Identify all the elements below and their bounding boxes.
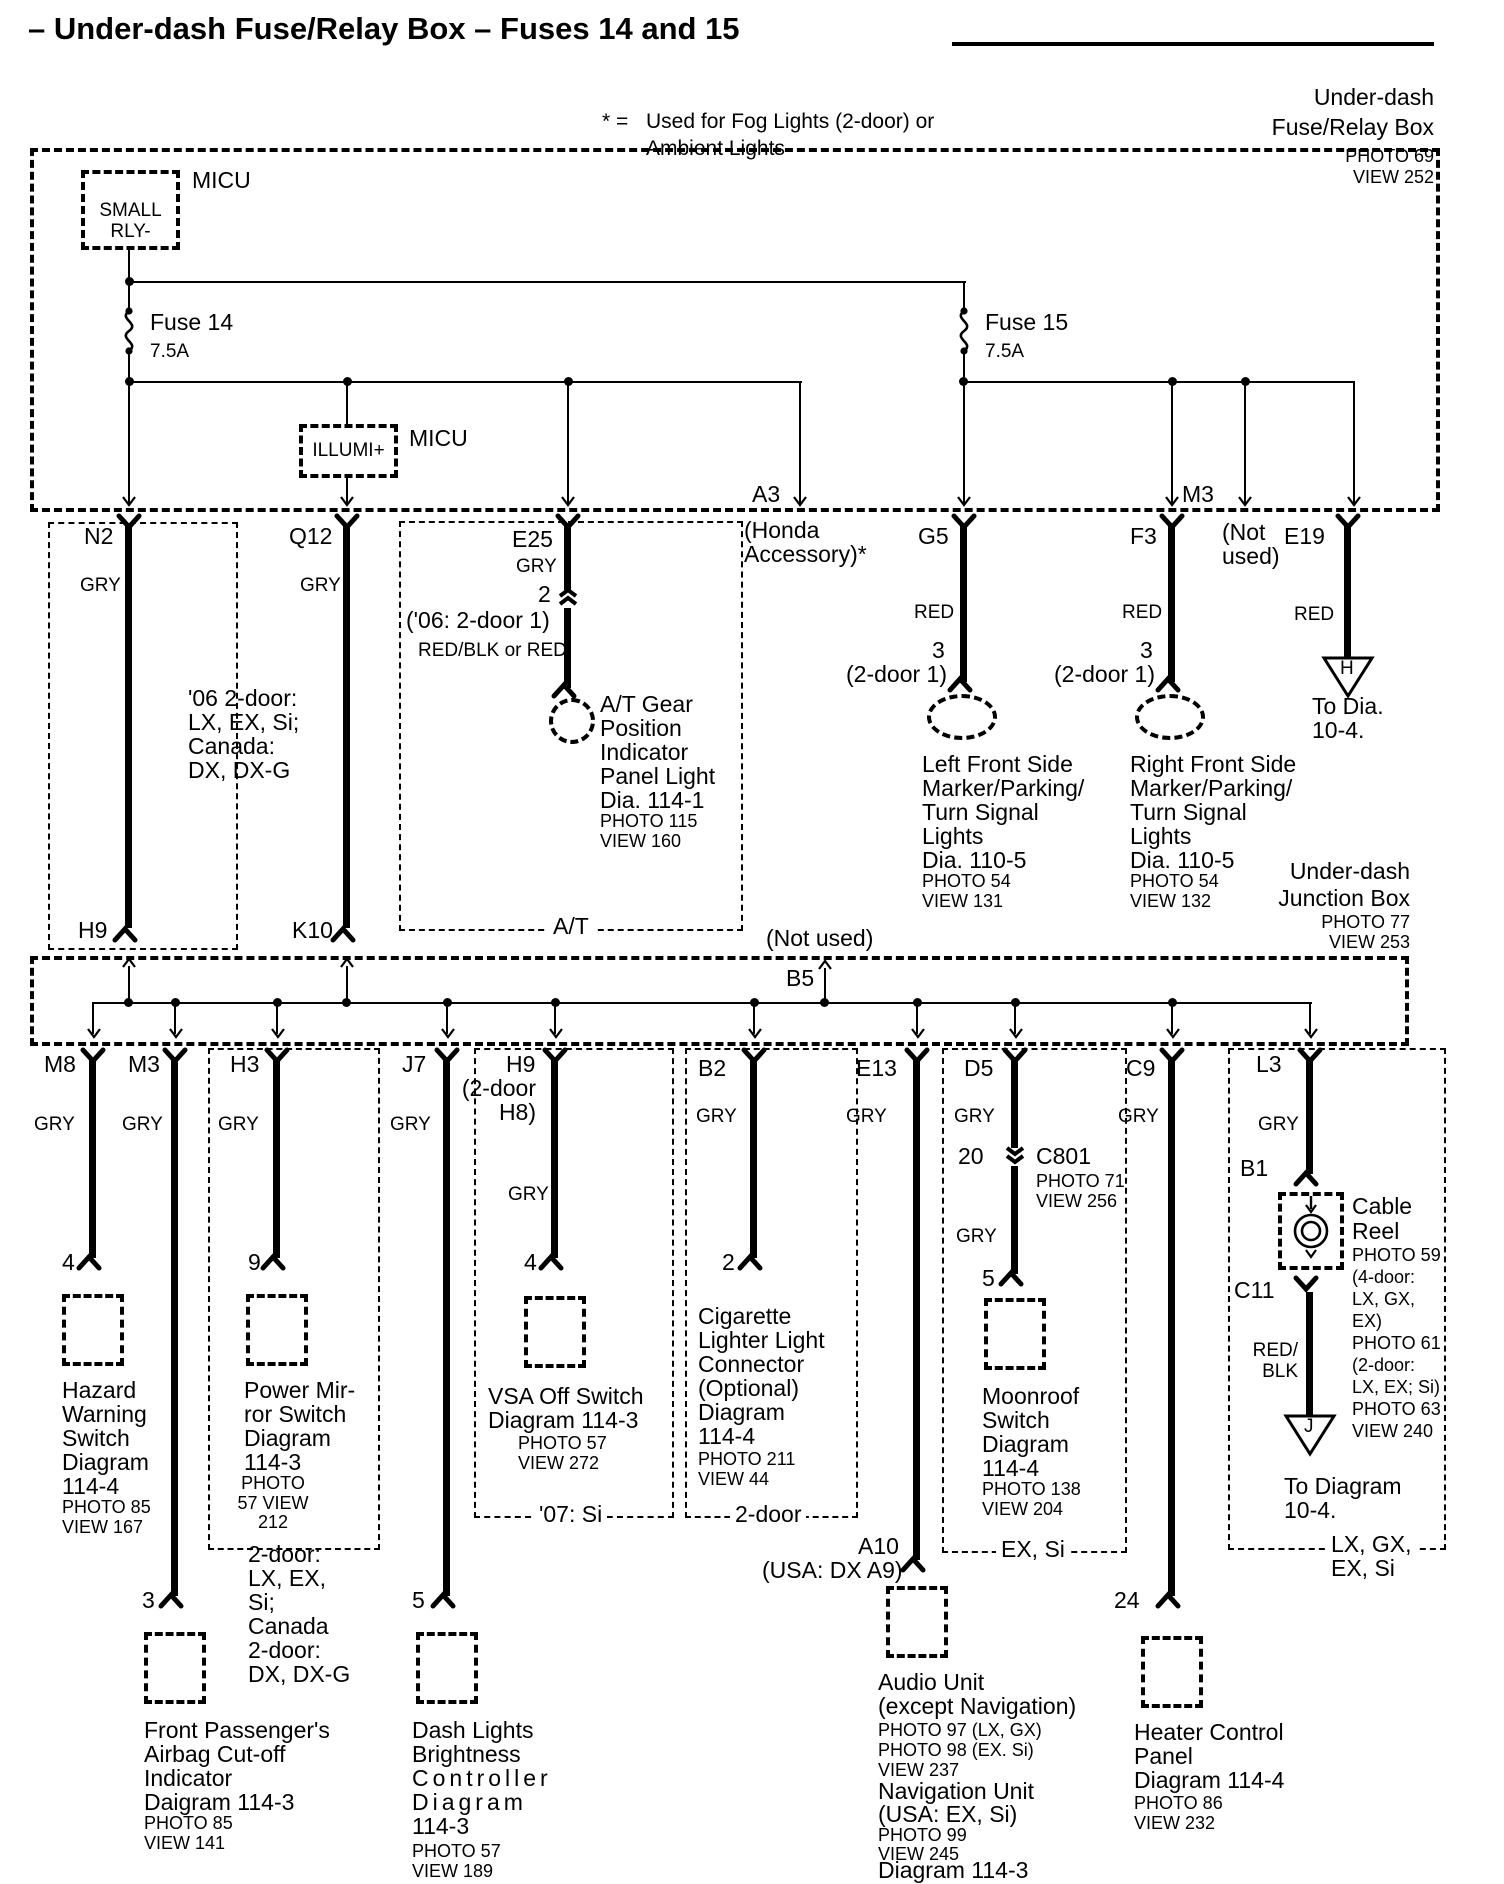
connector-fork-down xyxy=(76,1254,102,1270)
connector-fork-down xyxy=(158,1592,184,1608)
arrow-down-e19 xyxy=(1346,496,1362,506)
h9-sub-note: (2-door H8) xyxy=(440,1076,536,1124)
fusebox-caption: Under-dash Fuse/Relay Box xyxy=(1150,82,1434,142)
e25-dest-ref: PHOTO 115 VIEW 160 xyxy=(600,812,697,851)
h3-note: 2-door: LX, EX, Si; Canada 2-door: DX, D… xyxy=(248,1542,350,1686)
junction-dot xyxy=(820,998,829,1007)
h9-pin: 4 xyxy=(524,1250,537,1274)
arrow-down xyxy=(1008,1028,1024,1038)
j7-pin: 5 xyxy=(412,1588,425,1612)
m8-pin: 4 xyxy=(62,1250,75,1274)
wire-illumi xyxy=(346,382,348,424)
wire-d5-upper xyxy=(1011,1058,1018,1148)
c9-dest: Heater Control Panel Diagram 114-4 xyxy=(1134,1720,1284,1792)
fuse-relay-box-outline xyxy=(30,148,1440,512)
m8-dest-ref: PHOTO 85 VIEW 167 xyxy=(62,1498,151,1537)
l3-wire-color2: RED/ BLK xyxy=(1240,1340,1298,1382)
e25-wire-color: GRY xyxy=(516,556,557,577)
e13-dest: Audio Unit (except Navigation) xyxy=(878,1670,1076,1718)
fuse14-rating: 7.5A xyxy=(150,341,189,362)
cable-reel-spiral xyxy=(1280,1194,1342,1264)
m3-dest-ref: PHOTO 85 VIEW 141 xyxy=(144,1814,233,1853)
connector-h9-label: H9 xyxy=(506,1052,535,1076)
connector-fork-down xyxy=(947,676,973,692)
wire-e19 xyxy=(1344,524,1351,658)
arrow-up-h9 xyxy=(121,958,137,968)
connector-m8-label: M8 xyxy=(44,1052,76,1076)
j7-dest-spaced: Controller Diagram xyxy=(412,1766,552,1814)
fuse15-symbol xyxy=(956,306,972,356)
connector-f3-label: F3 xyxy=(1130,524,1157,548)
arrow-down xyxy=(440,1028,456,1038)
c9-pin: 24 xyxy=(1114,1588,1140,1612)
audio-unit-box xyxy=(886,1586,948,1658)
f3-wire-color: RED xyxy=(1122,602,1162,623)
micu-relay-label: MICU xyxy=(192,168,251,192)
at-box-label: A/T xyxy=(548,914,594,938)
n2-wire-color: GRY xyxy=(80,575,121,596)
wire-b2 xyxy=(750,1058,757,1258)
n2-exit-label: H9 xyxy=(78,918,107,942)
connector-j7-label: J7 xyxy=(402,1052,426,1076)
connector-m3-row1-label: M3 xyxy=(1182,482,1214,506)
junction-dot xyxy=(125,277,134,286)
b2-pin: 2 xyxy=(722,1250,735,1274)
f3-pin: 3 xyxy=(1140,638,1153,662)
fuse15-rating: 7.5A xyxy=(985,341,1024,362)
arrow-down xyxy=(910,1028,926,1038)
mid-right-bus xyxy=(963,381,1355,383)
wire-m3-drop xyxy=(1244,382,1246,504)
e19-wire-color: RED xyxy=(1294,604,1334,625)
junctionbox-caption-ref: PHOTO 77 VIEW 253 xyxy=(1150,912,1410,952)
connector-c9-label: C9 xyxy=(1126,1056,1155,1080)
arrow-down-f3 xyxy=(1164,496,1180,506)
power-mirror-switch-box xyxy=(246,1294,308,1366)
connector-fork-down xyxy=(1155,1592,1181,1608)
connector-n2-label: N2 xyxy=(84,524,113,548)
b1-label: B1 xyxy=(1240,1156,1268,1180)
e25-wire-color2: RED/BLK or RED xyxy=(418,640,567,661)
connector-a3-label: A3 xyxy=(752,482,780,506)
arrow-down-q12 xyxy=(339,496,355,506)
d5-pin: 5 xyxy=(982,1266,995,1290)
h3-pin: 9 xyxy=(248,1250,261,1274)
g5-connector-oval xyxy=(927,694,997,740)
connector-fork-down xyxy=(1155,676,1181,692)
wire-g5 xyxy=(960,524,967,682)
connector-fork-down xyxy=(998,1270,1024,1286)
e13-dest-ref: PHOTO 97 (LX, GX) PHOTO 98 (EX. Si) VIEW… xyxy=(878,1720,1042,1780)
connector-h3-label: H3 xyxy=(230,1052,259,1076)
junction-dot xyxy=(959,377,968,386)
d5-wire-color2: GRY xyxy=(956,1226,997,1247)
top-bus xyxy=(128,281,966,283)
arrow-up-k10 xyxy=(339,958,355,968)
connector-g5-label: G5 xyxy=(918,524,949,548)
wire-l3-lower xyxy=(1306,1292,1313,1416)
b2-dest: Cigarette Lighter Light Connector (Optio… xyxy=(698,1304,825,1448)
connector-fork xyxy=(1293,1276,1319,1292)
moonroof-switch-box xyxy=(984,1298,1046,1370)
arrow-down xyxy=(1165,1028,1181,1038)
e13-dest2: Navigation Unit (USA: EX, Si) xyxy=(878,1780,1034,1826)
g5-dest: Left Front Side Marker/Parking/ Turn Sig… xyxy=(922,752,1084,872)
junctionbox-caption: Under-dash Junction Box xyxy=(1150,858,1410,912)
airbag-indicator-box xyxy=(144,1632,206,1704)
micu-illumi-label: MICU xyxy=(409,426,468,450)
g5-pin: 3 xyxy=(932,638,945,662)
row1-variant-note: '06 2-door: LX, EX, Si; Canada: DX, DX-G xyxy=(188,686,299,782)
page-title: – Under-dash Fuse/Relay Box – Fuses 14 a… xyxy=(28,12,740,46)
c9-dest-ref: PHOTO 86 VIEW 232 xyxy=(1134,1794,1223,1833)
wire-m8 xyxy=(89,1058,96,1258)
arrow-down xyxy=(548,1028,564,1038)
e25-pin: 2 xyxy=(538,582,551,606)
f3-connector-oval xyxy=(1135,694,1205,740)
connector-fork-down xyxy=(112,926,138,942)
wire-e25-upper xyxy=(564,524,571,590)
hazard-switch-box xyxy=(62,1294,124,1366)
d5-wire-color: GRY xyxy=(954,1106,995,1127)
d5-dest-ref: PHOTO 138 VIEW 204 xyxy=(982,1480,1081,1519)
q12-wire-color: GRY xyxy=(300,575,341,596)
connector-l3-label: L3 xyxy=(1256,1052,1282,1076)
e19-dest: To Dia. 10-4. xyxy=(1312,694,1384,742)
arrow-down-m3 xyxy=(1237,496,1253,506)
b2-box-label: 2-door xyxy=(730,1502,806,1526)
h9-box-label: '07: Si xyxy=(534,1502,607,1526)
cable-reel-ref: PHOTO 59 (4-door: LX, GX, EX) PHOTO 61 (… xyxy=(1352,1244,1441,1442)
b2-dest-ref: PHOTO 211 VIEW 44 xyxy=(698,1450,795,1489)
arrow-down xyxy=(270,1028,286,1038)
m3-dest: Front Passenger's Airbag Cut-off Indicat… xyxy=(144,1718,330,1814)
connector-d5-label: D5 xyxy=(964,1056,993,1080)
f3-pin-note: (2-door 1) xyxy=(1054,662,1155,686)
illumi-label: ILLUMI+ xyxy=(299,440,398,461)
connector-fork-down xyxy=(1293,1170,1319,1186)
g5-dest-ref: PHOTO 54 VIEW 131 xyxy=(922,872,1011,911)
connector-fork-down xyxy=(551,682,577,698)
wiring-diagram-page: { "title": "– Under-dash Fuse/Relay Box … xyxy=(0,0,1504,1884)
bulb-symbol xyxy=(549,698,595,744)
wire-e13 xyxy=(913,1058,920,1560)
junction-box-outline xyxy=(30,956,1409,1046)
j7-dest-ref: PHOTO 57 VIEW 189 xyxy=(412,1842,501,1881)
a10-note: (USA: DX A9) xyxy=(762,1558,903,1582)
d5-dest: Moonroof Switch Diagram 114-4 xyxy=(982,1384,1079,1480)
arrow-down xyxy=(168,1028,184,1038)
b5-label: B5 xyxy=(786,966,814,990)
h9-dest-ref: PHOTO 57 VIEW 272 xyxy=(518,1434,607,1473)
wire-m3 xyxy=(171,1058,178,1596)
wire-h3 xyxy=(273,1058,280,1258)
connector-fork-down xyxy=(430,1592,456,1608)
wire-d5-lower xyxy=(1011,1166,1018,1274)
connector-fork-down xyxy=(330,926,356,942)
arrow-down-a3 xyxy=(792,496,808,506)
h3-wire-color: GRY xyxy=(218,1114,259,1135)
g5-pin-note: (2-door 1) xyxy=(846,662,947,686)
h3-dest: Power Mir- ror Switch Diagram 114-3 xyxy=(244,1378,355,1474)
arrow-down xyxy=(1303,1028,1319,1038)
junction-dot xyxy=(125,377,134,386)
wire-f3-drop xyxy=(1171,382,1173,504)
l3-dest: To Diagram 10-4. xyxy=(1284,1474,1402,1522)
fuse14-label: Fuse 14 xyxy=(150,310,233,334)
connector-m3-row2-label: M3 xyxy=(128,1052,160,1076)
e25-note: ('06: 2-door 1) xyxy=(406,608,550,632)
wire-j7 xyxy=(443,1058,450,1596)
b2-wire-color: GRY xyxy=(696,1106,737,1127)
a10-label: A10 xyxy=(858,1534,899,1558)
connector-b2-label: B2 xyxy=(698,1056,726,1080)
m3-row1-note: (Not used) xyxy=(1222,520,1280,568)
connector-q12-label: Q12 xyxy=(289,524,332,548)
cable-reel-name: Cable Reel xyxy=(1352,1194,1412,1244)
fuse14-symbol xyxy=(121,306,137,356)
connector-fork-down xyxy=(900,1556,926,1572)
wire-c9 xyxy=(1168,1058,1175,1596)
e25-dest: A/T Gear Position Indicator Panel Light … xyxy=(600,692,715,812)
wire-h9 xyxy=(551,1058,558,1258)
dash-brightness-box xyxy=(416,1632,478,1704)
d5-inline-id: C801 xyxy=(1036,1144,1091,1168)
e13-dest3: Diagram 114-3 xyxy=(878,1858,1028,1882)
title-rule xyxy=(952,42,1434,46)
m8-dest: Hazard Warning Switch Diagram 114-4 xyxy=(62,1378,149,1498)
m3-pin: 3 xyxy=(142,1588,155,1612)
d5-inline-pin: 20 xyxy=(958,1144,984,1168)
c11-label: C11 xyxy=(1234,1278,1275,1302)
d5-box-label: EX, Si xyxy=(996,1537,1070,1561)
e13-wire-color: GRY xyxy=(846,1106,887,1127)
wire-f3 xyxy=(1168,524,1175,682)
j7-dest-end: 114-3 xyxy=(412,1814,469,1838)
g5-wire-color: RED xyxy=(914,602,954,623)
legend-symbol: * = xyxy=(602,108,628,135)
connector-fork-down xyxy=(538,1254,564,1270)
inline-connector-chevrons-up xyxy=(557,588,579,606)
junction-dot xyxy=(342,998,351,1007)
j7-dest: Dash Lights Brightness xyxy=(412,1718,533,1766)
mid-left-bus xyxy=(128,381,802,383)
wire-e19-drop xyxy=(1353,382,1355,504)
wire-q12 xyxy=(343,524,350,928)
h3-dest-ref: PHOTO 57 VIEW 212 xyxy=(228,1474,318,1533)
wire-e25-drop xyxy=(567,382,569,504)
e19-triangle-letter: H xyxy=(1340,658,1354,679)
heater-panel-box xyxy=(1141,1636,1203,1708)
connector-fork-down xyxy=(737,1254,763,1270)
fuse15-label: Fuse 15 xyxy=(985,310,1068,334)
connector-e13-label: E13 xyxy=(856,1056,897,1080)
arrow-down-e25 xyxy=(560,496,576,506)
l3-triangle-letter: J xyxy=(1304,1416,1314,1437)
m8-wire-color: GRY xyxy=(34,1114,75,1135)
connector-e25-label: E25 xyxy=(512,527,553,551)
arrow-down xyxy=(747,1028,763,1038)
inline-connector-chevrons-down xyxy=(1004,1146,1026,1164)
small-relay-label: SMALL RLY- xyxy=(81,200,180,242)
wire-n2 xyxy=(125,524,132,928)
connector-e19-label: E19 xyxy=(1284,524,1325,548)
j7-wire-color: GRY xyxy=(390,1114,431,1135)
h9-dest: VSA Off Switch Diagram 114-3 xyxy=(488,1384,644,1432)
m3-wire-color: GRY xyxy=(122,1114,163,1135)
l3-wire-color: GRY xyxy=(1258,1114,1299,1135)
l3-box-label: LX, GX, EX, Si xyxy=(1326,1532,1417,1580)
arrow-down xyxy=(86,1028,102,1038)
a3-note: (Honda Accessory)* xyxy=(744,518,867,566)
f3-dest: Right Front Side Marker/Parking/ Turn Si… xyxy=(1130,752,1296,872)
wire-a3-drop xyxy=(799,382,801,504)
connector-fork-down xyxy=(260,1254,286,1270)
c9-wire-color: GRY xyxy=(1118,1106,1159,1127)
junction-dot xyxy=(124,998,133,1007)
b5-not-used-label: (Not used) xyxy=(766,926,873,950)
d5-inline-ref: PHOTO 71 VIEW 256 xyxy=(1036,1172,1125,1211)
wire-l3-upper xyxy=(1306,1058,1313,1174)
arrow-up-b5 xyxy=(817,960,833,970)
arrow-down-n2 xyxy=(121,496,137,506)
arrow-down-g5 xyxy=(956,496,972,506)
q12-exit-label: K10 xyxy=(292,918,333,942)
h9-wire-color: GRY xyxy=(508,1184,549,1205)
vsa-switch-box xyxy=(524,1296,586,1368)
